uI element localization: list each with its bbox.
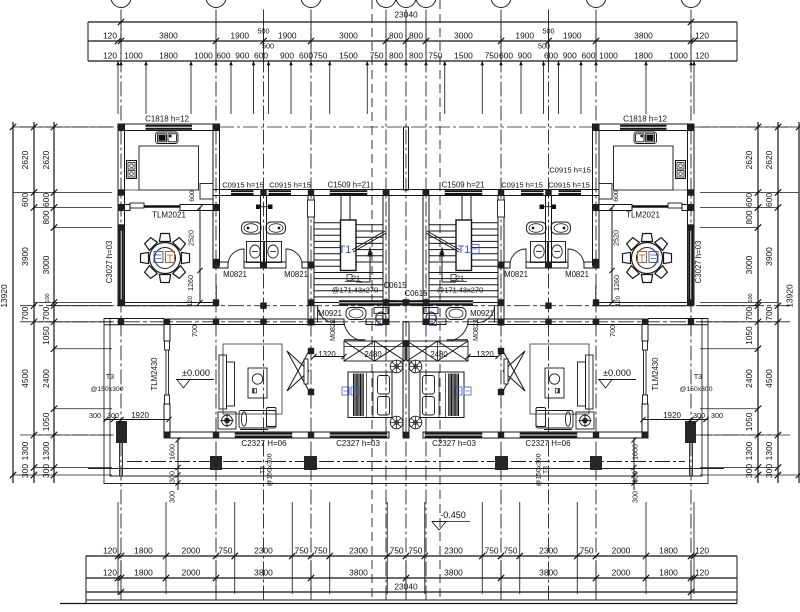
- svg-text:750: 750: [408, 546, 422, 556]
- svg-text:900: 900: [280, 51, 294, 61]
- svg-text:1500: 1500: [454, 51, 473, 61]
- svg-text:2000: 2000: [182, 568, 201, 578]
- svg-text:1300: 1300: [764, 441, 774, 460]
- svg-text:750: 750: [370, 51, 384, 61]
- svg-text:1800: 1800: [134, 546, 153, 556]
- svg-text:100: 100: [45, 293, 51, 302]
- svg-text:300: 300: [744, 464, 754, 478]
- svg-text:1800: 1800: [159, 51, 178, 61]
- svg-text:1800: 1800: [659, 568, 678, 578]
- svg-text:3000: 3000: [339, 31, 358, 41]
- svg-text:750: 750: [580, 546, 594, 556]
- svg-text:2620: 2620: [744, 150, 754, 169]
- svg-text:M0921: M0921: [318, 309, 342, 318]
- svg-text:120: 120: [695, 51, 709, 61]
- svg-text:600: 600: [217, 51, 231, 61]
- svg-text:800: 800: [389, 51, 403, 61]
- svg-text:600: 600: [499, 51, 513, 61]
- svg-text:C3027 h=03: C3027 h=03: [105, 241, 114, 284]
- svg-text:500: 500: [258, 27, 270, 36]
- svg-text:700: 700: [744, 306, 754, 320]
- svg-text:700: 700: [190, 325, 199, 337]
- svg-text:3000: 3000: [454, 31, 473, 41]
- svg-text:120: 120: [695, 546, 709, 556]
- svg-text:C2327 H=06: C2327 H=06: [241, 439, 287, 448]
- svg-text:600: 600: [254, 51, 268, 61]
- svg-text:M0821: M0821: [223, 270, 247, 279]
- svg-text:3800: 3800: [634, 31, 653, 41]
- svg-text:500: 500: [543, 27, 555, 36]
- svg-text:C0915 h=15: C0915 h=15: [501, 181, 543, 190]
- svg-text:C0915 h=15: C0915 h=15: [549, 166, 591, 175]
- svg-text:3800: 3800: [254, 568, 273, 578]
- svg-text:1800: 1800: [634, 51, 653, 61]
- svg-text:2300: 2300: [254, 546, 273, 556]
- svg-text:1000: 1000: [669, 51, 688, 61]
- svg-text:2480: 2480: [430, 350, 448, 359]
- svg-text:T1: T1: [339, 244, 352, 256]
- svg-text:1320: 1320: [318, 350, 336, 359]
- svg-text:TLM2021: TLM2021: [626, 211, 660, 220]
- svg-text:750: 750: [503, 546, 517, 556]
- svg-text:1260: 1260: [612, 275, 621, 291]
- svg-text:1300: 1300: [744, 441, 754, 460]
- svg-text:C0915 h=15: C0915 h=15: [269, 181, 311, 190]
- svg-text:700: 700: [608, 325, 617, 337]
- svg-text:C0615: C0615: [405, 289, 429, 298]
- svg-text:C1818 h=12: C1818 h=12: [145, 115, 189, 124]
- svg-text:1300: 1300: [41, 441, 51, 460]
- svg-text:M0821: M0821: [328, 319, 337, 341]
- svg-text:2400: 2400: [744, 369, 754, 388]
- svg-text:23040: 23040: [394, 582, 418, 592]
- svg-text:2520: 2520: [187, 230, 196, 246]
- svg-text:3000: 3000: [744, 255, 754, 274]
- svg-text:@171.43x270: @171.43x270: [332, 286, 378, 295]
- svg-text:120: 120: [103, 31, 117, 41]
- svg-text:T3: T3: [543, 466, 550, 474]
- svg-text:2000: 2000: [182, 546, 201, 556]
- svg-text:TLM2021: TLM2021: [152, 211, 186, 220]
- svg-text:4500: 4500: [764, 369, 774, 388]
- svg-text:600: 600: [189, 190, 196, 202]
- svg-text:TLM2430: TLM2430: [651, 357, 660, 391]
- svg-text:120: 120: [103, 568, 117, 578]
- svg-text:900: 900: [235, 51, 249, 61]
- svg-text:1800: 1800: [659, 546, 678, 556]
- svg-text:800: 800: [389, 31, 403, 41]
- svg-text:2620: 2620: [764, 150, 774, 169]
- svg-text:1000: 1000: [599, 51, 618, 61]
- svg-text:C0915 h=15: C0915 h=15: [548, 181, 590, 190]
- svg-text:T3: T3: [260, 466, 267, 474]
- svg-text:2520: 2520: [612, 230, 621, 246]
- svg-text:2000: 2000: [612, 568, 631, 578]
- svg-text:1050: 1050: [744, 326, 754, 345]
- svg-text:@150x300: @150x300: [536, 453, 543, 486]
- svg-text:300: 300: [107, 411, 119, 420]
- svg-text:750: 750: [313, 51, 327, 61]
- svg-text:@171.43x270: @171.43x270: [437, 286, 483, 295]
- svg-text:±0.000: ±0.000: [603, 368, 631, 378]
- svg-text:2000: 2000: [612, 546, 631, 556]
- svg-text:300: 300: [41, 464, 51, 478]
- svg-text:300: 300: [711, 411, 723, 420]
- svg-text:600: 600: [41, 193, 51, 207]
- svg-text:750: 750: [313, 546, 327, 556]
- svg-text:3000: 3000: [41, 255, 51, 274]
- svg-text:600: 600: [544, 51, 558, 61]
- svg-text:900: 900: [563, 51, 577, 61]
- svg-text:@150x300: @150x300: [267, 453, 274, 486]
- svg-text:1920: 1920: [131, 411, 149, 420]
- svg-text:500: 500: [538, 42, 550, 51]
- svg-text:600: 600: [582, 51, 596, 61]
- svg-text:750: 750: [390, 546, 404, 556]
- svg-text:3800: 3800: [444, 568, 463, 578]
- svg-text:C1509 h=21: C1509 h=21: [442, 181, 485, 190]
- svg-text:@150x300: @150x300: [91, 386, 124, 393]
- svg-text:300: 300: [168, 471, 177, 483]
- svg-text:3800: 3800: [159, 31, 178, 41]
- svg-text:600: 600: [764, 193, 774, 207]
- svg-text:T3: T3: [106, 374, 114, 381]
- svg-text:M0921: M0921: [470, 309, 494, 318]
- svg-text:3800: 3800: [539, 568, 558, 578]
- svg-text:C2327 h=03: C2327 h=03: [432, 439, 476, 448]
- svg-text:3800: 3800: [349, 568, 368, 578]
- svg-text:TLM2430: TLM2430: [150, 357, 159, 391]
- svg-text:M0821: M0821: [565, 270, 589, 279]
- svg-text:C1509 h=21: C1509 h=21: [328, 181, 371, 190]
- svg-text:M0821: M0821: [504, 270, 528, 279]
- svg-text:1320: 1320: [476, 350, 494, 359]
- svg-text:700: 700: [41, 306, 51, 320]
- svg-text:300: 300: [89, 411, 101, 420]
- svg-text:1260: 1260: [186, 275, 195, 291]
- svg-text:800: 800: [409, 31, 423, 41]
- svg-text:3900: 3900: [20, 247, 30, 266]
- svg-text:23040: 23040: [394, 10, 418, 20]
- svg-text:750: 750: [485, 546, 499, 556]
- svg-text:1920: 1920: [663, 411, 681, 420]
- svg-text:-0.450: -0.450: [440, 510, 466, 520]
- svg-text:800: 800: [744, 210, 754, 224]
- svg-text:C1818 h=12: C1818 h=12: [623, 115, 667, 124]
- svg-text:1300: 1300: [20, 441, 30, 460]
- svg-text:120: 120: [616, 295, 622, 306]
- svg-text:T1: T1: [458, 244, 471, 256]
- svg-text:2480: 2480: [364, 350, 382, 359]
- svg-text:13920: 13920: [0, 284, 9, 308]
- svg-text:1600: 1600: [168, 444, 177, 460]
- svg-text:600: 600: [20, 193, 30, 207]
- svg-text:1000: 1000: [124, 51, 143, 61]
- svg-text:750: 750: [218, 546, 232, 556]
- svg-text:120: 120: [695, 31, 709, 41]
- svg-text:1500: 1500: [339, 51, 358, 61]
- svg-text:500: 500: [262, 42, 274, 51]
- svg-text:300: 300: [764, 464, 774, 478]
- svg-text:3900: 3900: [764, 247, 774, 266]
- svg-text:1050: 1050: [41, 326, 51, 345]
- svg-text:900: 900: [518, 51, 532, 61]
- svg-text:120: 120: [188, 295, 194, 306]
- svg-text:C3027 h=03: C3027 h=03: [694, 241, 703, 284]
- svg-text:100: 100: [748, 293, 754, 302]
- svg-text:600: 600: [299, 51, 313, 61]
- svg-text:800: 800: [409, 51, 423, 61]
- svg-text:1050: 1050: [41, 412, 51, 431]
- svg-text:800: 800: [41, 210, 51, 224]
- svg-text:300: 300: [20, 464, 30, 478]
- svg-text:600: 600: [613, 190, 620, 202]
- svg-text:1050: 1050: [744, 412, 754, 431]
- svg-text:750: 750: [295, 546, 309, 556]
- svg-text:2620: 2620: [41, 150, 51, 169]
- svg-text:2620: 2620: [20, 150, 30, 169]
- svg-text:1900: 1900: [563, 31, 582, 41]
- svg-text:300: 300: [168, 491, 177, 503]
- svg-text:750: 750: [428, 51, 442, 61]
- svg-text:2300: 2300: [349, 546, 368, 556]
- svg-text:1600: 1600: [631, 444, 640, 460]
- svg-text:C0915 h=15: C0915 h=15: [222, 181, 264, 190]
- svg-text:4500: 4500: [20, 369, 30, 388]
- svg-text:1900: 1900: [278, 31, 297, 41]
- svg-text:±0.000: ±0.000: [182, 368, 210, 378]
- svg-text:600: 600: [744, 193, 754, 207]
- svg-text:2300: 2300: [444, 546, 463, 556]
- svg-text:1900: 1900: [515, 31, 534, 41]
- svg-text:750: 750: [485, 51, 499, 61]
- svg-text:2300: 2300: [539, 546, 558, 556]
- svg-text:C2327 H=06: C2327 H=06: [525, 439, 571, 448]
- svg-text:@150x300: @150x300: [680, 386, 713, 393]
- svg-text:1900: 1900: [230, 31, 249, 41]
- svg-text:120: 120: [103, 546, 117, 556]
- svg-text:1000: 1000: [194, 51, 213, 61]
- svg-text:700: 700: [764, 306, 774, 320]
- svg-text:13920: 13920: [785, 284, 795, 308]
- svg-text:M0821: M0821: [284, 270, 308, 279]
- svg-text:1800: 1800: [134, 568, 153, 578]
- svg-text:M0821: M0821: [471, 319, 480, 341]
- svg-text:T3: T3: [694, 374, 702, 381]
- svg-text:700: 700: [20, 306, 30, 320]
- svg-text:120: 120: [695, 568, 709, 578]
- svg-text:C2327 h=03: C2327 h=03: [336, 439, 380, 448]
- svg-text:2400: 2400: [41, 369, 51, 388]
- svg-text:300: 300: [631, 491, 640, 503]
- svg-text:120: 120: [103, 51, 117, 61]
